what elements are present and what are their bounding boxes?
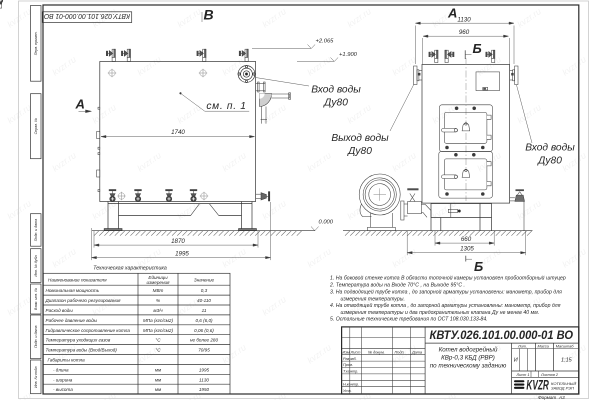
- svg-text:Инв. № дубл.: Инв. № дубл.: [34, 254, 38, 276]
- svg-text:см. п. 1: см. п. 1: [206, 101, 246, 112]
- svg-text:КВр-0,3 КБД (РВР): КВр-0,3 КБД (РВР): [441, 355, 495, 362]
- svg-text:МВт: МВт: [153, 288, 164, 293]
- svg-text:1740: 1740: [171, 129, 185, 136]
- svg-text:Расход воды: Расход воды: [46, 308, 74, 313]
- svg-text:Наименование показателя: Наименование показателя: [48, 277, 107, 282]
- svg-text:Гидравлическое сопротивление к: Гидравлическое сопротивление котла: [46, 328, 131, 333]
- svg-text:по техническому заданию: по техническому заданию: [430, 363, 507, 370]
- svg-text:Номинальная мощность: Номинальная мощность: [46, 288, 100, 293]
- svg-text:Подп. и дата: Подп. и дата: [34, 219, 38, 242]
- svg-text:И: И: [514, 358, 518, 364]
- svg-text:измерения температуры и два пр: измерения температуры и два предохраните…: [341, 310, 540, 316]
- svg-text:Б: Б: [473, 41, 482, 56]
- svg-text:Рабочее давление воды: Рабочее давление воды: [46, 318, 98, 323]
- svg-text:KVZR: KVZR: [526, 377, 549, 392]
- svg-text:Ду80: Ду80: [537, 156, 562, 167]
- svg-text:0.000: 0.000: [319, 220, 334, 226]
- svg-text:Ду80: Ду80: [323, 98, 348, 109]
- svg-text:Подп.: Подп.: [395, 350, 405, 354]
- svg-text:Т.контр.: Т.контр.: [343, 370, 358, 374]
- svg-text:Выход воды: Выход воды: [331, 133, 389, 144]
- svg-text:1130: 1130: [199, 377, 209, 382]
- svg-text:+1.900: +1.900: [339, 52, 358, 58]
- svg-text:ЗАВОД РЭП: ЗАВОД РЭП: [551, 385, 574, 390]
- svg-text:Температура уходящих газов: Температура уходящих газов: [46, 338, 111, 343]
- svg-text:Взам. инв. №: Взам. инв. №: [34, 288, 38, 310]
- svg-text:5. Остальные технические треб: 5. Остальные технические требования по О…: [330, 317, 488, 323]
- svg-text:Формат: Формат: [538, 395, 556, 400]
- svg-text:1995: 1995: [175, 250, 189, 257]
- svg-text:2. Температура воды на Входе: 2. Температура воды на Входе 70°С , на В…: [329, 283, 465, 289]
- svg-text:3. На подводящей трубе котла: 3. На подводящей трубе котла , до запорн…: [330, 289, 562, 296]
- svg-text:Лит.: Лит.: [517, 344, 527, 348]
- svg-text:измерения: измерения: [147, 280, 171, 285]
- svg-text:Ду80: Ду80: [347, 146, 372, 157]
- svg-text:Листов 2: Листов 2: [540, 373, 559, 377]
- svg-text:Лист 1: Лист 1: [516, 373, 530, 377]
- svg-text:1995: 1995: [199, 367, 210, 372]
- svg-text:4. На отводящей трубе котла ,: 4. На отводящей трубе котла , до запорно…: [330, 302, 561, 309]
- svg-text:м3/ч: м3/ч: [153, 308, 163, 313]
- svg-text:КВТУ.026.101.00.000-01 ВО: КВТУ.026.101.00.000-01 ВО: [430, 328, 574, 342]
- svg-text:Температура воды (Вход/Выход): Температура воды (Вход/Выход): [46, 348, 118, 353]
- svg-text:%: %: [156, 298, 160, 303]
- svg-text:Пров.: Пров.: [343, 363, 353, 367]
- svg-text:мм: мм: [155, 367, 162, 372]
- svg-text:МПа (кгс/см2): МПа (кгс/см2): [143, 318, 173, 323]
- svg-text:+2.065: +2.065: [316, 39, 335, 45]
- svg-text:А3: А3: [558, 395, 565, 400]
- svg-text:Значение: Значение: [194, 277, 215, 282]
- svg-text:Б: Б: [474, 259, 483, 274]
- svg-text:Справ. №: Справ. №: [34, 118, 38, 134]
- svg-text:40-110: 40-110: [197, 298, 211, 303]
- svg-text:- длина: - длина: [53, 367, 69, 372]
- svg-text:Дата: Дата: [411, 350, 422, 354]
- svg-text:70/95: 70/95: [198, 348, 210, 353]
- svg-text:1305: 1305: [460, 246, 474, 253]
- svg-text:А: А: [75, 97, 85, 112]
- svg-text:Утв.: Утв.: [343, 389, 352, 393]
- svg-text:0,06 (0,6): 0,06 (0,6): [194, 328, 214, 333]
- svg-text:Изм.Лист: Изм.Лист: [343, 350, 361, 354]
- svg-text:°С: °С: [155, 348, 161, 353]
- svg-text:1870: 1870: [171, 238, 185, 245]
- svg-text:не более 280: не более 280: [190, 338, 218, 343]
- svg-text:1:15: 1:15: [561, 358, 573, 364]
- svg-text:Диапазон рабочего регулировани: Диапазон рабочего регулирования: [45, 298, 122, 303]
- svg-text:1. На боковой стенке котла В: 1. На боковой стенке котла В области топ…: [330, 275, 566, 282]
- svg-text:А: А: [447, 6, 457, 21]
- svg-text:В: В: [204, 6, 214, 22]
- svg-text:мм: мм: [155, 387, 162, 392]
- svg-text:КВТУ.026.101.00.000-01 ВО: КВТУ.026.101.00.000-01 ВО: [44, 12, 130, 21]
- svg-text:0,3: 0,3: [201, 288, 208, 293]
- svg-text:Техническая характеристика: Техническая характеристика: [93, 266, 167, 272]
- svg-text:- высота: - высота: [53, 387, 73, 392]
- svg-text:Перв. примен.: Перв. примен.: [34, 31, 38, 55]
- svg-text:Габариты котла: Габариты котла: [48, 358, 86, 363]
- svg-text:1130: 1130: [457, 17, 471, 24]
- svg-text:мм: мм: [155, 377, 162, 382]
- svg-text:Подп. и дата: Подп. и дата: [34, 326, 38, 349]
- svg-text:660: 660: [461, 236, 472, 243]
- svg-text:измерения температуры.: измерения температуры.: [341, 296, 406, 302]
- svg-text:Масса: Масса: [538, 344, 549, 348]
- svg-text:Инв. № подл.: Инв. № подл.: [34, 366, 38, 388]
- svg-text:°С: °С: [155, 338, 161, 343]
- svg-text:- ширина: - ширина: [53, 377, 73, 382]
- svg-text:Вход воды: Вход воды: [525, 143, 575, 154]
- svg-text:№ докум.: № докум.: [368, 350, 385, 354]
- svg-text:1950: 1950: [199, 387, 210, 392]
- svg-text:960: 960: [459, 29, 470, 36]
- svg-text:11: 11: [202, 308, 207, 313]
- svg-text:Масштаб: Масштаб: [556, 344, 575, 348]
- svg-text:Котел водогрейный: Котел водогрейный: [439, 347, 498, 354]
- svg-text:Н.контр.: Н.контр.: [343, 382, 359, 386]
- svg-text:Вход воды: Вход воды: [311, 85, 361, 96]
- svg-text:МПа (кгс/см2): МПа (кгс/см2): [143, 328, 173, 333]
- svg-text:Разраб.: Разраб.: [343, 357, 357, 361]
- svg-text:0,6 (6,0): 0,6 (6,0): [195, 318, 213, 323]
